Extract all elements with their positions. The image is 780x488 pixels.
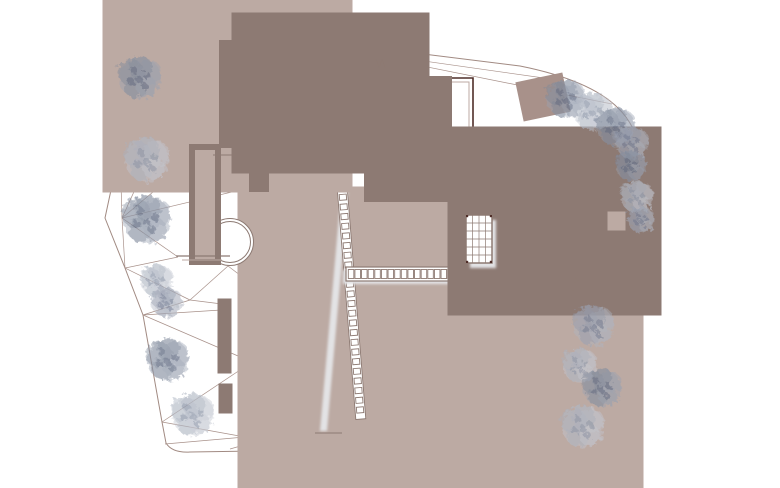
plan-elements-layer xyxy=(165,58,621,442)
stair-tread xyxy=(353,368,360,374)
tree-texture xyxy=(569,93,575,99)
stair-tread xyxy=(344,252,351,258)
tree-texture xyxy=(141,83,148,90)
tree-texture xyxy=(557,89,563,95)
stair-tread xyxy=(352,349,359,355)
tree-texture xyxy=(583,361,589,367)
step-cell xyxy=(428,270,434,279)
step-cell xyxy=(388,270,394,279)
stair-tread xyxy=(339,194,346,200)
tree-texture xyxy=(632,169,637,174)
tree-texture xyxy=(624,158,629,163)
tree-texture xyxy=(130,66,137,73)
tree-texture xyxy=(623,143,628,148)
step-cell xyxy=(401,270,407,279)
skylight-grid xyxy=(466,215,492,263)
step-cell xyxy=(348,270,354,279)
tree-texture xyxy=(171,354,178,361)
tree-texture xyxy=(605,127,611,133)
tree-texture xyxy=(597,320,604,327)
tree-texture xyxy=(154,280,159,285)
step-cell xyxy=(408,270,414,279)
terrain-mesh-line xyxy=(190,300,222,304)
garden-steps xyxy=(346,267,455,281)
garden-pier xyxy=(254,152,264,187)
tree-texture xyxy=(194,420,201,427)
tree-texture xyxy=(567,103,573,109)
tree-texture xyxy=(634,196,639,201)
retaining-wall-b xyxy=(222,387,229,410)
tree-texture xyxy=(629,188,634,193)
stair-tread xyxy=(355,387,362,393)
tree-texture xyxy=(148,165,155,172)
tree-texture xyxy=(168,306,173,311)
stair-tread xyxy=(349,310,356,316)
tree-texture xyxy=(591,388,597,394)
stair-b xyxy=(563,276,569,304)
tree-texture xyxy=(196,409,203,416)
tree-texture xyxy=(582,112,588,118)
tree-texture xyxy=(573,415,580,422)
tree-texture xyxy=(133,220,141,228)
tree-texture xyxy=(639,219,643,223)
tree-texture xyxy=(593,378,599,384)
building-b-notch xyxy=(612,216,621,226)
tree-texture xyxy=(149,272,154,277)
tree-texture xyxy=(589,110,595,116)
step-cell xyxy=(381,270,387,279)
tree-texture xyxy=(638,201,643,206)
tree-texture xyxy=(603,392,609,398)
tree xyxy=(151,287,182,318)
tree-texture xyxy=(151,213,159,221)
stair-tread xyxy=(349,320,356,326)
tree-texture xyxy=(584,432,591,439)
terrain-mesh-line xyxy=(165,437,245,444)
tree-texture xyxy=(619,121,625,127)
tree-texture xyxy=(612,125,618,131)
retaining-wall-a xyxy=(221,302,228,370)
grid-corner xyxy=(466,261,468,263)
stair-tread xyxy=(348,300,355,306)
tree-texture xyxy=(628,197,633,202)
tree-texture xyxy=(571,427,578,434)
tree-texture xyxy=(555,99,561,105)
step-cell xyxy=(421,270,427,279)
tree-texture xyxy=(582,326,589,333)
tree-texture xyxy=(640,192,645,197)
tree-texture xyxy=(629,142,634,147)
entry-steps-3 xyxy=(392,66,402,70)
tree-texture xyxy=(136,207,144,215)
stair-tread xyxy=(356,407,363,413)
stair-tread xyxy=(352,358,359,364)
garden-wall-inner xyxy=(200,155,210,254)
tree-texture xyxy=(183,403,190,410)
tree-texture xyxy=(134,160,141,167)
tree-texture xyxy=(148,281,153,286)
tree-texture xyxy=(605,382,611,388)
tree-texture xyxy=(590,324,597,331)
tree-texture xyxy=(622,166,627,171)
tree-texture xyxy=(579,425,586,432)
tree-texture xyxy=(169,365,176,372)
site-plan-canvas xyxy=(0,0,780,488)
step-cell xyxy=(434,270,440,279)
tree-texture xyxy=(137,148,144,155)
tree-texture xyxy=(570,366,576,372)
tree xyxy=(171,393,214,436)
step-cell xyxy=(415,270,421,279)
tree-texture xyxy=(160,276,165,281)
tree-texture xyxy=(584,102,590,108)
stair-tread xyxy=(343,242,350,248)
stair-tread xyxy=(342,223,349,229)
tree-texture xyxy=(181,415,188,422)
tree-texture xyxy=(628,165,633,170)
stair-tread xyxy=(356,397,363,403)
step-cell xyxy=(395,270,401,279)
tree-texture xyxy=(128,78,135,85)
tree-texture xyxy=(643,216,647,220)
grid-corner xyxy=(490,215,492,217)
tree-texture xyxy=(143,158,150,165)
grid-corner xyxy=(490,261,492,263)
tree-texture xyxy=(148,226,156,234)
tree-texture xyxy=(598,386,604,392)
tree-texture xyxy=(164,302,169,307)
tree-texture xyxy=(595,331,602,338)
tree-texture xyxy=(577,364,583,370)
stair-tread xyxy=(351,339,358,345)
tree-texture xyxy=(189,413,196,420)
tree-texture xyxy=(642,223,646,227)
tree-texture xyxy=(158,348,165,355)
tree-texture xyxy=(586,421,593,428)
site-plan-svg xyxy=(0,0,780,488)
stair-tread xyxy=(340,204,347,210)
tree-texture xyxy=(624,134,629,139)
tree xyxy=(146,338,189,381)
step-cell xyxy=(368,270,374,279)
step-cell xyxy=(362,270,368,279)
step-cell xyxy=(375,270,381,279)
tree-texture xyxy=(164,358,171,365)
terrain-mesh-line xyxy=(190,266,228,300)
stair-tread xyxy=(354,378,361,384)
tree-texture xyxy=(151,154,158,161)
tree-texture xyxy=(160,295,165,300)
step-cell xyxy=(355,270,361,279)
tree-texture xyxy=(635,138,640,143)
tree-texture xyxy=(585,315,592,322)
tree-texture xyxy=(158,303,163,308)
tree-texture xyxy=(169,299,174,304)
tree-texture xyxy=(607,117,613,123)
tree-texture xyxy=(635,213,639,217)
tree xyxy=(121,195,171,244)
stair-tread xyxy=(342,233,349,239)
step-cell xyxy=(441,270,447,279)
stair-tread xyxy=(347,291,354,297)
tree-texture xyxy=(562,97,568,103)
tree-texture xyxy=(633,220,637,224)
stair-hall xyxy=(386,98,430,180)
building-b-inner xyxy=(501,180,608,262)
stair-tread xyxy=(341,213,348,219)
grid-corner xyxy=(466,215,468,217)
tree-texture xyxy=(156,360,163,367)
tree-texture xyxy=(143,72,150,79)
tree-texture xyxy=(572,357,578,363)
tree-texture xyxy=(136,76,143,83)
stair-tread xyxy=(350,329,357,335)
tree-texture xyxy=(633,162,638,167)
tree-texture xyxy=(142,218,150,226)
